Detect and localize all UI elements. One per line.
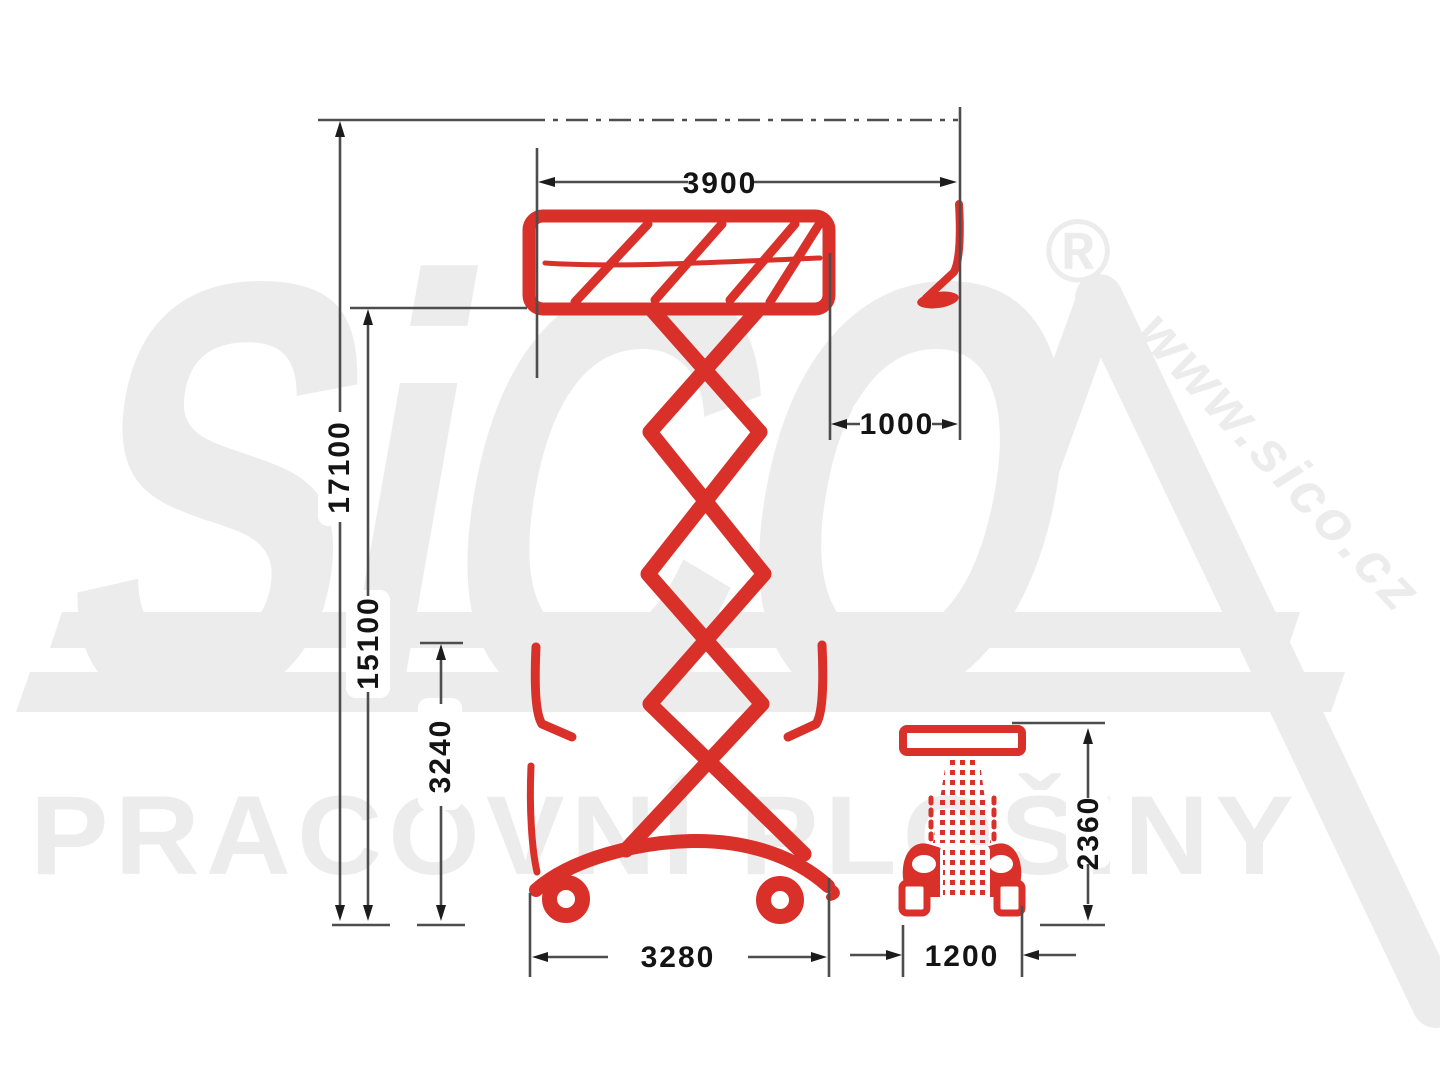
wheel-rear-left	[902, 883, 927, 913]
registered-trademark-watermark: ®	[1045, 202, 1111, 302]
wheel-rear-right	[997, 883, 1022, 913]
platform-extension-label: 1000	[860, 408, 935, 441]
rear-chassis-center-dots	[943, 848, 987, 899]
diagram-canvas: SiCO ® www.sico.cz PRACOVNÍ PLOŠINY	[0, 0, 1440, 1080]
dimension-overall-width: 1200	[850, 906, 1076, 977]
wheel-side-right	[764, 884, 797, 917]
wheel-side-left	[550, 883, 583, 916]
arrow-right-icon	[811, 952, 827, 962]
arrow-down-icon	[335, 905, 345, 921]
arrow-left-icon	[1023, 950, 1039, 960]
arrow-left-icon	[532, 952, 548, 962]
arrow-down-icon	[436, 905, 446, 921]
arrow-up-icon	[1083, 728, 1093, 744]
logo-stripe-top	[50, 612, 1300, 648]
arrow-up-icon	[335, 121, 345, 137]
overall-width-label: 1200	[925, 940, 1000, 973]
arrow-right-icon	[886, 950, 902, 960]
scissor-lift-dimension-diagram: SiCO ® www.sico.cz PRACOVNÍ PLOŠINY	[0, 0, 1440, 1080]
max-platform-height-label: 15100	[352, 596, 385, 689]
max-working-height-label: 17100	[323, 420, 356, 513]
rear-platform	[903, 729, 1022, 752]
overall-length-label: 3280	[641, 941, 716, 974]
arrow-down-icon	[363, 905, 373, 921]
arrow-down-icon	[1083, 905, 1093, 921]
rear-chassis-cutout-right	[989, 855, 1013, 873]
platform-length-label: 3900	[683, 167, 758, 200]
stowed-height-label: 3240	[424, 719, 457, 794]
stowed-rear-height-label: 2360	[1072, 796, 1105, 871]
rear-chassis-cutout-left	[912, 855, 936, 873]
